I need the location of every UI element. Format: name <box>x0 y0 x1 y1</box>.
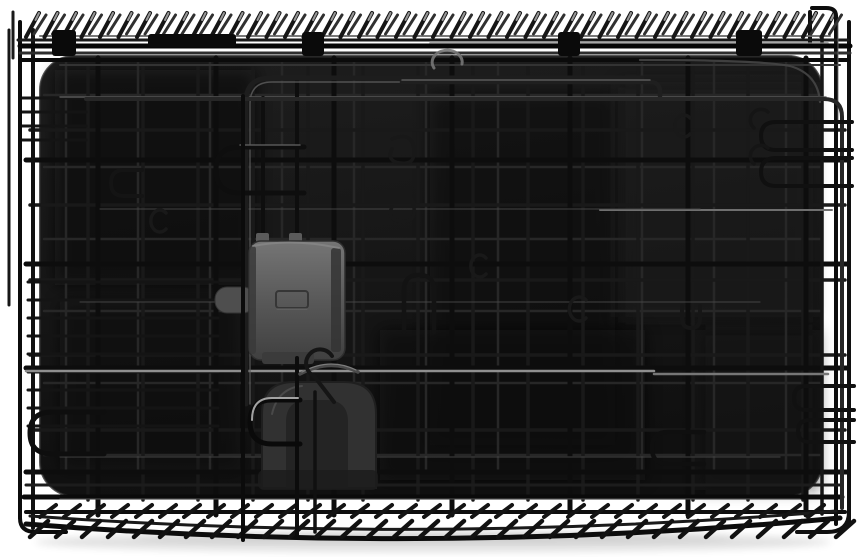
latch-body <box>249 241 345 360</box>
pan-shading <box>55 70 255 285</box>
rail-clip <box>736 30 762 56</box>
handle-base <box>258 470 378 490</box>
latch-edge <box>331 248 341 352</box>
rail-clip <box>302 32 324 56</box>
rail-clip <box>148 34 236 47</box>
rail-clip <box>52 30 76 56</box>
dog-crate-photo <box>0 0 865 557</box>
latch-edge <box>249 246 256 354</box>
rail-clip <box>558 32 580 56</box>
product-photo-dog-crate <box>0 0 865 557</box>
